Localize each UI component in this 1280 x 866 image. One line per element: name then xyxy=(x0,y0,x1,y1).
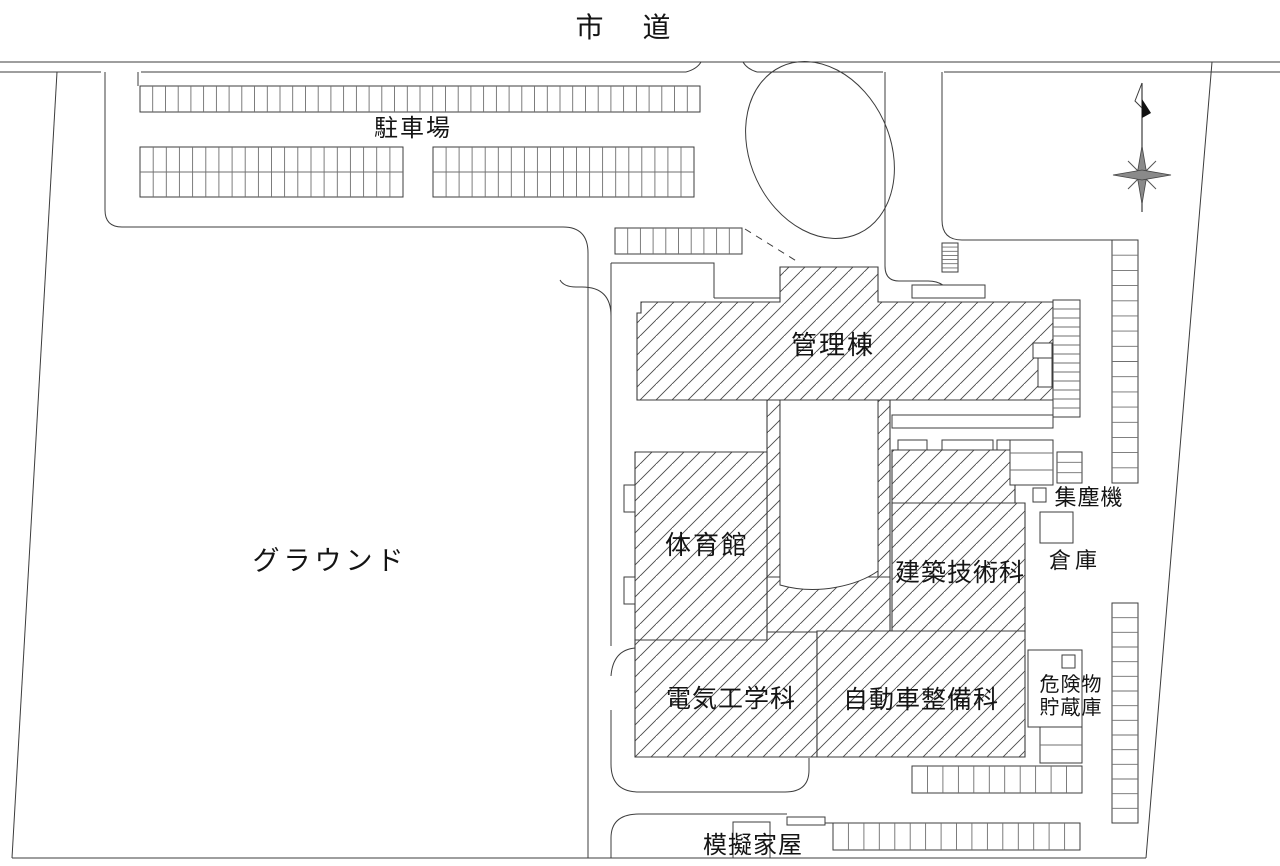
parking-strip-right-strip-lower xyxy=(1112,603,1138,823)
gym-annex-b xyxy=(624,577,635,604)
arch-roof-box-a xyxy=(898,440,927,450)
label-taiikukan: 体育館 xyxy=(665,531,749,560)
parking-strip-lot-block-east xyxy=(433,147,694,197)
label-kenchiku: 建築技術科 xyxy=(895,559,1025,587)
corridor-west xyxy=(767,400,780,578)
forecourt-dashed-path xyxy=(745,229,798,262)
site-plan-page: 市 道駐車場グラウンド管理棟体育館建築技術科電気工学科自動車整備科集塵機倉庫危険… xyxy=(0,0,1280,866)
parking-strip-crosswalk-steps xyxy=(942,243,958,272)
parking-strip-strip-near-admin xyxy=(615,228,742,254)
driveway-flare xyxy=(743,62,757,72)
mock-house-shed xyxy=(787,817,825,825)
site-boundary-east xyxy=(1146,62,1212,858)
service-road-north-edge xyxy=(122,227,588,253)
gym-annex-a xyxy=(624,485,635,512)
parking-strip-steps-hazmat xyxy=(1040,727,1082,763)
label-kikenbutsu2: 貯蔵庫 xyxy=(1040,696,1103,719)
label-jidosha: 自動車整備科 xyxy=(843,686,999,714)
label-shujinki: 集塵機 xyxy=(1054,485,1123,510)
parking-strip-south-strip xyxy=(912,766,1082,793)
label-denki: 電気工学科 xyxy=(666,685,796,713)
service-road-inner-edge xyxy=(560,280,582,287)
forecourt-outline xyxy=(611,263,714,298)
rotary-ellipse xyxy=(718,37,923,263)
label-kikenbutsu1: 危険物 xyxy=(1040,673,1103,696)
admin-porch xyxy=(912,285,985,298)
admin-steps-a xyxy=(1033,343,1052,358)
courtyard xyxy=(780,400,878,589)
entry-road-west-edge xyxy=(885,72,951,297)
site-plan-drawing: 市 道駐車場グラウンド管理棟体育館建築技術科電気工学科自動車整備科集塵機倉庫危険… xyxy=(0,0,1280,866)
parking-strip-stairs-east-admin xyxy=(1053,300,1080,417)
site-boundary-west xyxy=(12,72,57,858)
label-ground: グラウンド xyxy=(253,546,408,576)
admin-steps-b xyxy=(1038,358,1052,387)
label-kanrito: 管理棟 xyxy=(791,331,875,360)
driveway-west-edge xyxy=(105,72,122,227)
driveway-flare xyxy=(686,62,701,72)
parking-strip-right-strip-upper xyxy=(1112,240,1138,483)
arch-roof-box-b xyxy=(942,440,993,450)
hazmat-box xyxy=(1062,655,1075,668)
parking-strip-bottom-strip xyxy=(833,823,1080,850)
admin-south-walk xyxy=(892,415,1053,428)
service-road-inner-corner xyxy=(582,287,611,316)
entry-road-east-edge xyxy=(942,72,1112,240)
north-arrow-icon xyxy=(1113,83,1171,212)
label-chushajo: 駐車場 xyxy=(374,115,452,142)
parking-strip-ladder-small xyxy=(1057,452,1082,483)
label-mogikaoku: 模擬家屋 xyxy=(703,832,803,859)
dust-collector-box xyxy=(1033,488,1046,502)
label-soko: 倉庫 xyxy=(1049,548,1101,573)
parking-strip-lot-top-row xyxy=(140,86,700,112)
label-shido: 市 道 xyxy=(575,12,686,44)
building-architecture-north xyxy=(892,450,1015,503)
walkway-corner xyxy=(611,648,635,676)
warehouse-box xyxy=(1040,512,1073,543)
parking-strip-lot-block-west xyxy=(140,147,403,197)
arch-east-block xyxy=(1010,440,1053,485)
